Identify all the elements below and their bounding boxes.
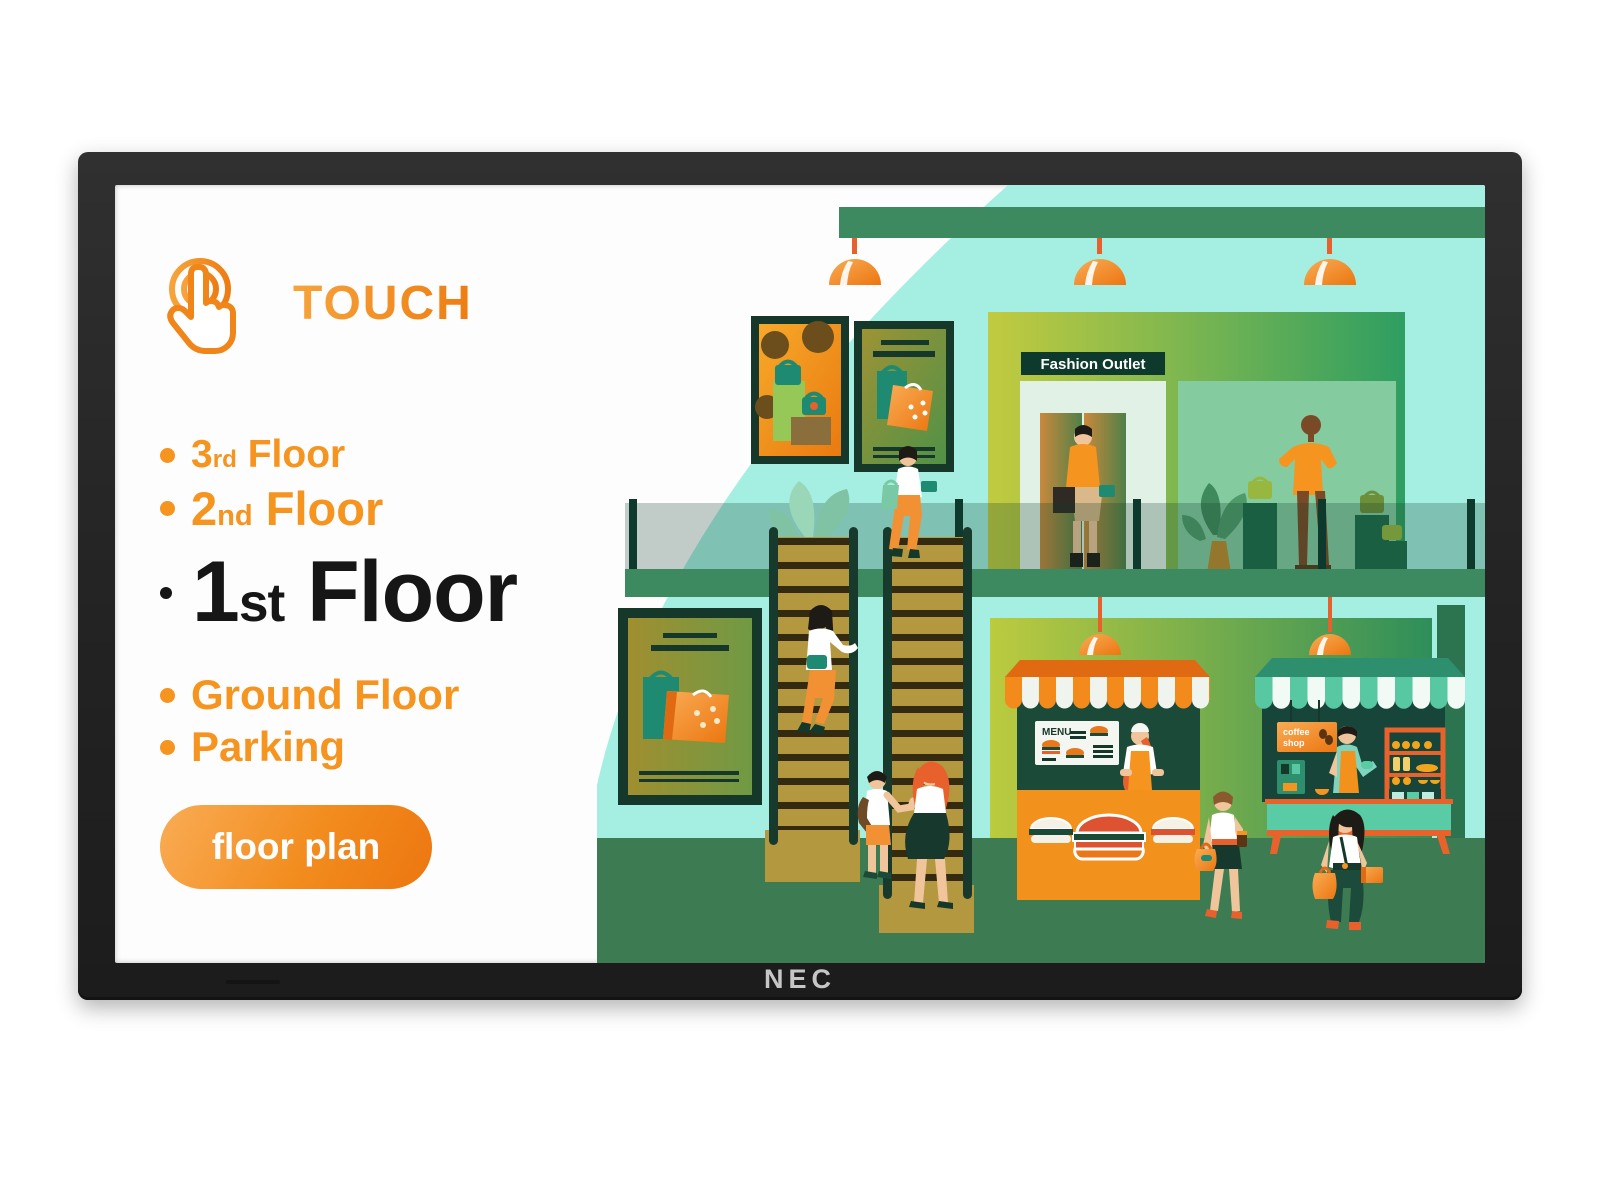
pendant-lamp: [829, 238, 881, 285]
svg-text:coffee: coffee: [1283, 727, 1310, 737]
svg-text:Fashion Outlet: Fashion Outlet: [1041, 356, 1146, 373]
svg-text:MENU: MENU: [1042, 727, 1071, 738]
floor-plan-button[interactable]: floor plan: [160, 805, 432, 889]
balcony-glass: [625, 499, 1485, 573]
touch-label: TOUCH: [293, 277, 473, 330]
poster-bags-green: [858, 325, 950, 468]
nec-logo: NEC: [764, 964, 836, 995]
bullet-icon: [160, 740, 175, 755]
touch-icon: [170, 261, 233, 351]
bullet-icon: [160, 448, 175, 463]
menu-board: MENU: [1035, 721, 1119, 765]
sidebar-item-parking[interactable]: Parking: [160, 723, 345, 771]
fashion-outlet-sign: Fashion Outlet: [1021, 352, 1165, 375]
monitor-frame: Fashion Outlet: [78, 152, 1522, 1000]
sidebar-item-1st-floor[interactable]: 1st Floor: [160, 543, 517, 642]
page: Fashion Outlet: [0, 0, 1600, 1200]
screen: Fashion Outlet: [115, 185, 1485, 963]
svg-text:shop: shop: [1283, 738, 1305, 748]
touch-branding: TOUCH: [153, 251, 483, 363]
sidebar-item-3rd-floor[interactable]: 3rd Floor: [160, 433, 345, 477]
poster-bags-orange: [755, 320, 845, 460]
bullet-icon: [160, 501, 175, 516]
balcony-floor: [625, 569, 1485, 597]
sale-poster-large: [623, 613, 757, 800]
ceiling-beam: [839, 207, 1485, 238]
burger-stand: MENU: [1005, 660, 1210, 900]
bullet-icon: [160, 688, 175, 703]
floor-menu: TOUCH 3rd Floor 2nd Floor 1st Floor: [115, 185, 597, 963]
sidebar-item-ground-floor[interactable]: Ground Floor: [160, 671, 459, 719]
sidebar-item-2nd-floor[interactable]: 2nd Floor: [160, 481, 383, 536]
bullet-icon: [160, 587, 172, 599]
escalator-right: [879, 527, 974, 933]
ir-sensor: [226, 980, 280, 984]
